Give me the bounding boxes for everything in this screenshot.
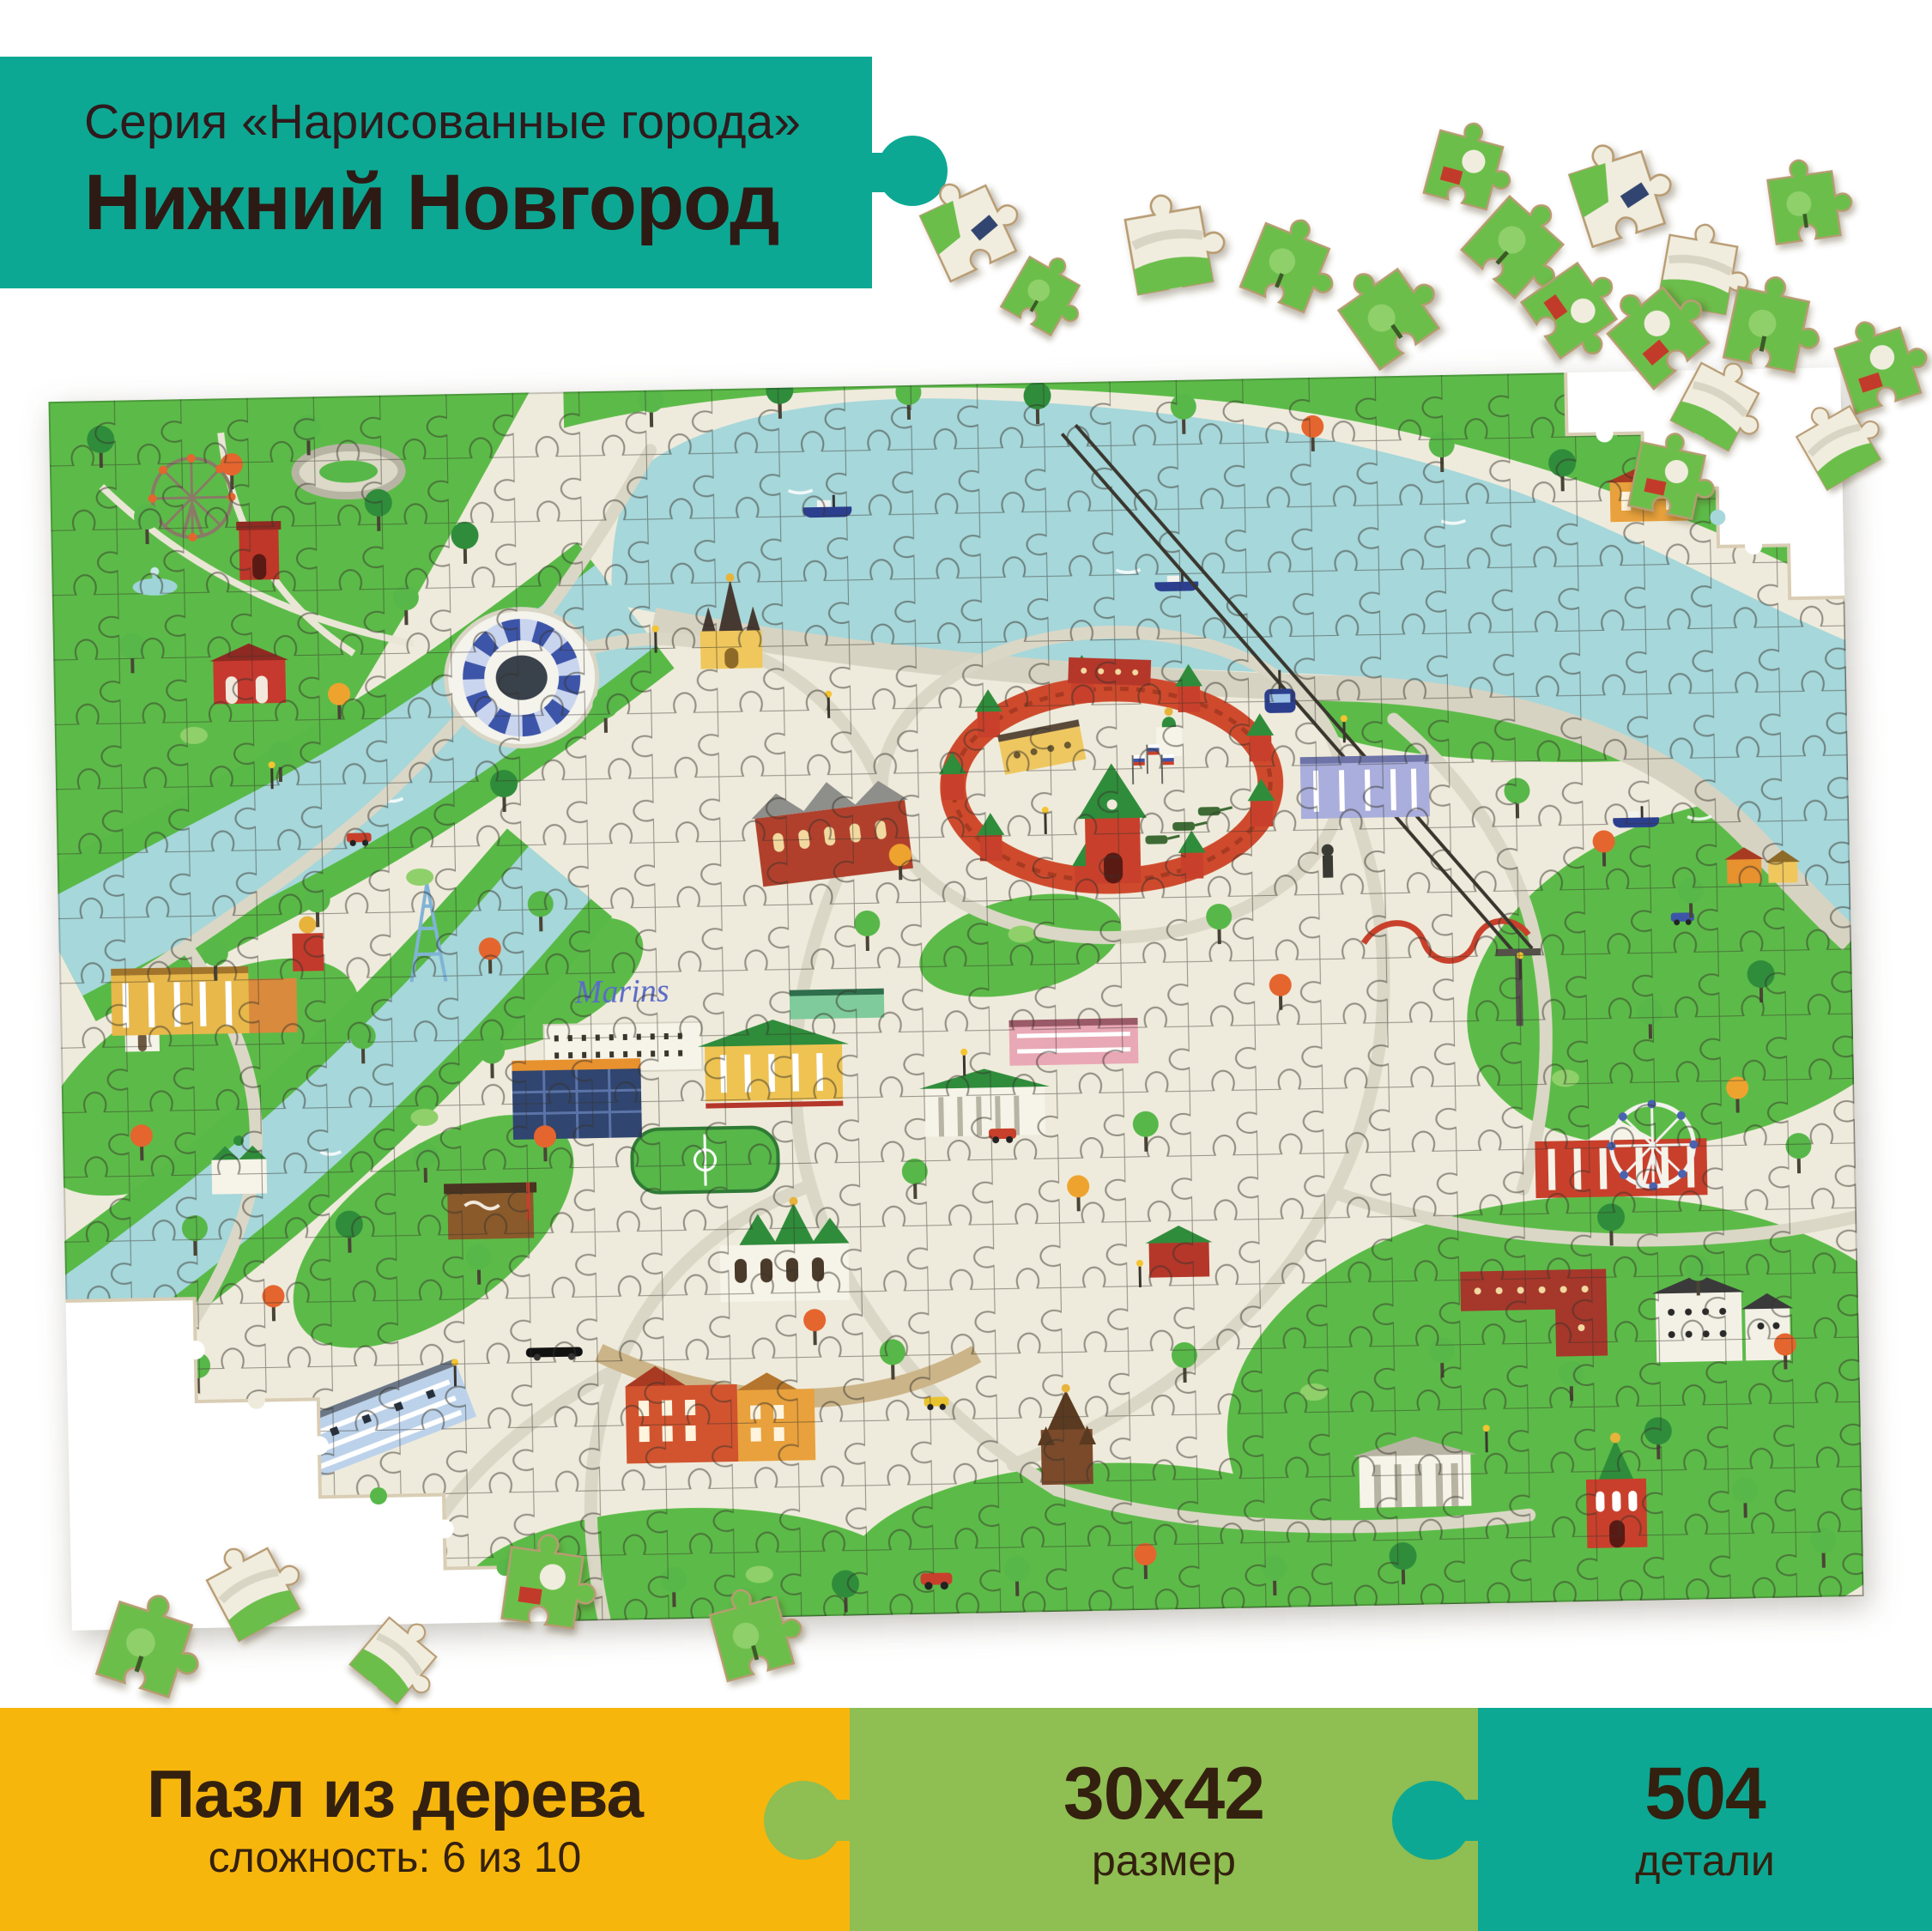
series-label: Серия «Нарисованные города» [84,94,801,151]
material-panel: Пазл из дерева сложность: 6 из 10 [0,1708,790,1931]
size-title: 30x42 [1063,1757,1264,1831]
page-title: Нижний Новгород [84,163,801,242]
series-banner: Серия «Нарисованные города» Нижний Новго… [0,57,872,288]
size-panel: 30x42 размер [850,1708,1478,1931]
pieces-title: 504 [1644,1757,1765,1831]
info-bar: Пазл из дерева сложность: 6 из 10 30x42 … [0,1708,1932,1931]
puzzle-photo: Marins [48,367,1863,1631]
material-title: Пазл из дерева [147,1760,643,1827]
pieces-panel: 504 детали [1478,1708,1932,1931]
city-map-illustration: Marins [48,367,1863,1631]
pieces-subtitle: детали [1635,1839,1775,1882]
size-subtitle: размер [1092,1839,1236,1882]
material-subtitle: сложность: 6 из 10 [209,1836,582,1879]
